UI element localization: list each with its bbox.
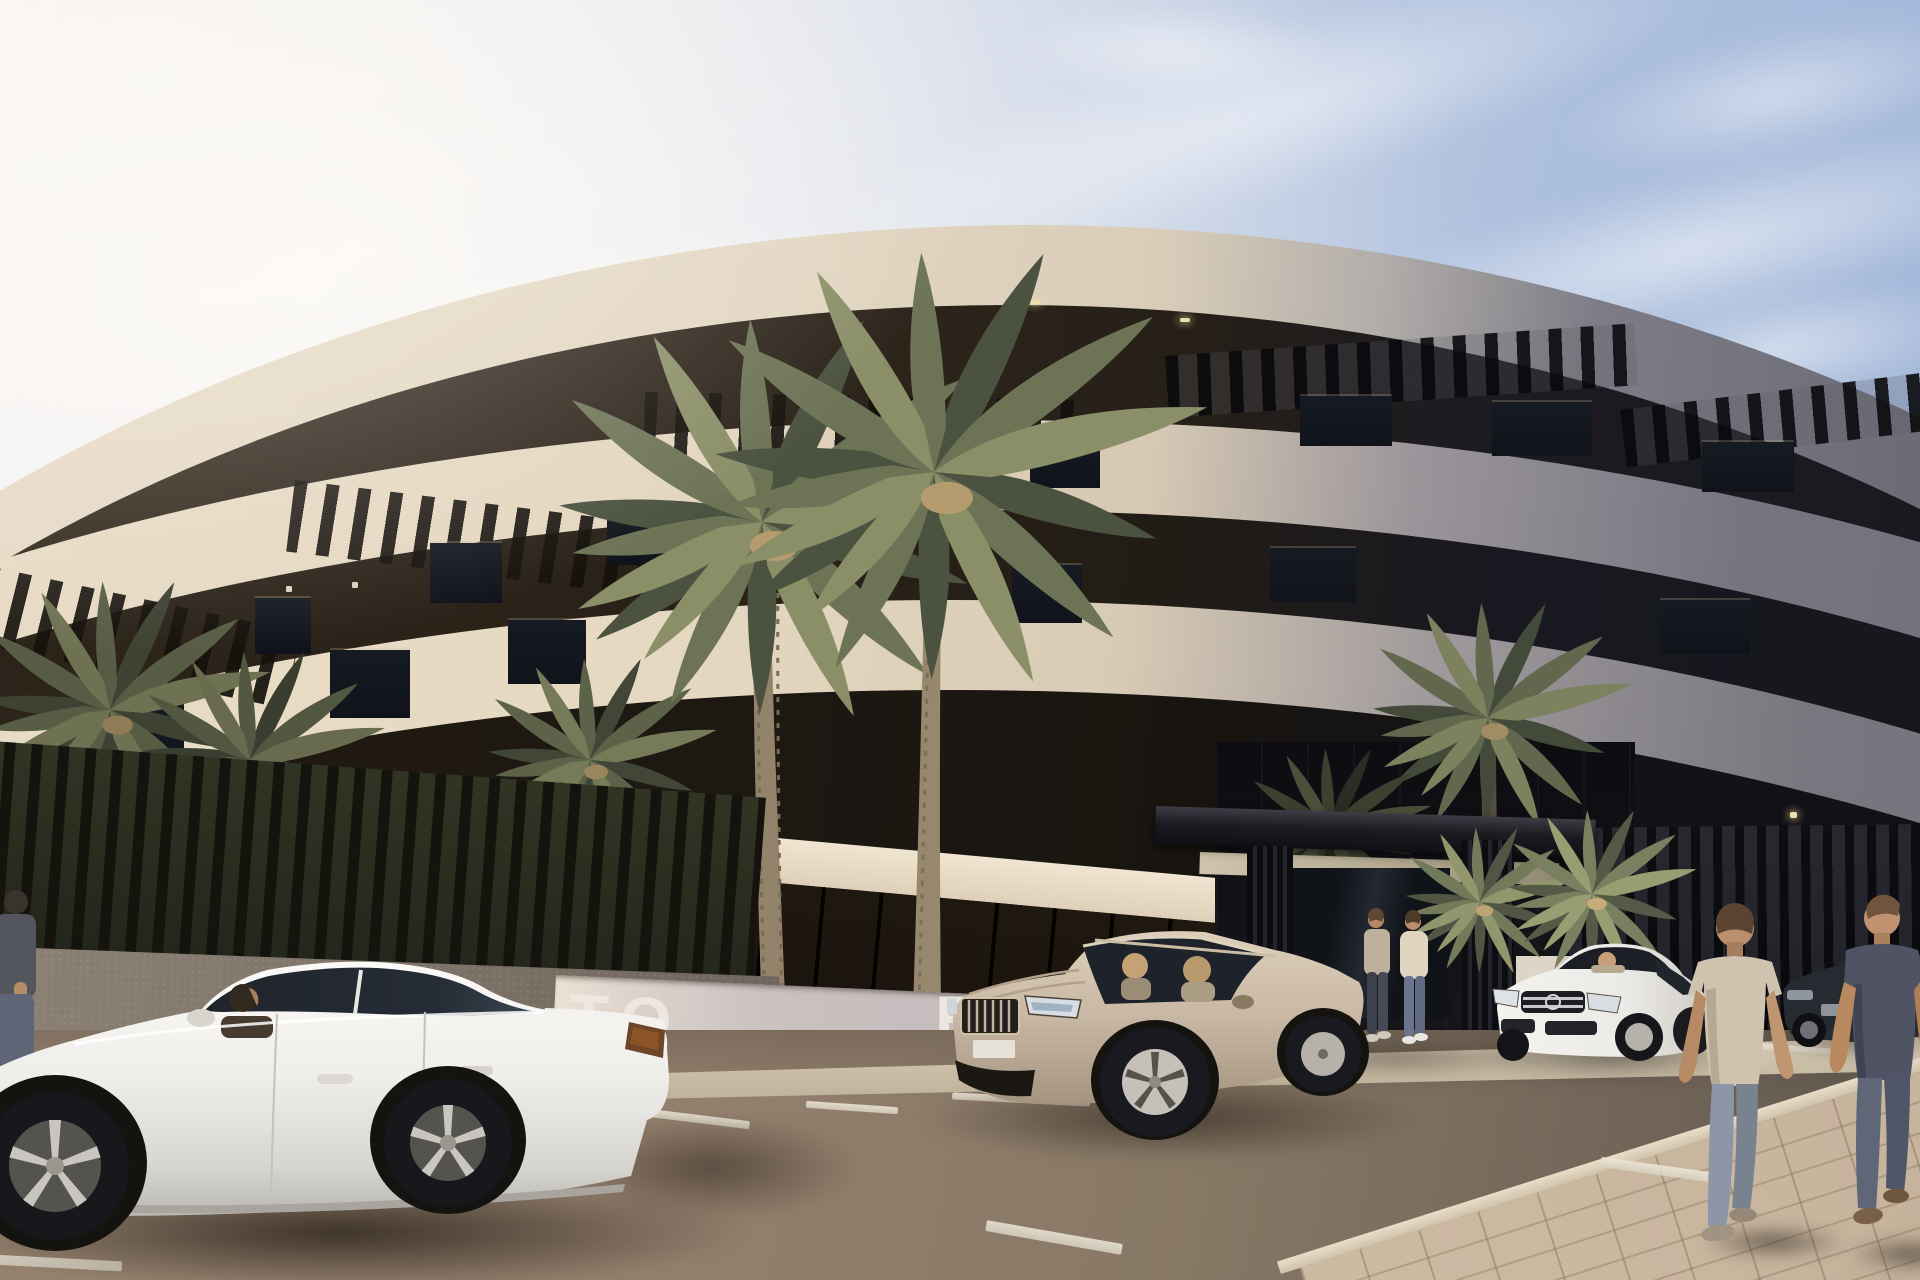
palm-tree-large: [720, 260, 1160, 1020]
window: [430, 543, 502, 603]
window: [1492, 402, 1592, 456]
sedan-driver-head: [229, 984, 257, 1012]
left-arm: [1679, 990, 1706, 1083]
jeans-right-leg: [1732, 1084, 1758, 1210]
suv-headlight-left: [947, 998, 957, 1014]
architectural-render-scene: TO E: [0, 0, 1920, 1280]
right-arm: [1766, 990, 1793, 1079]
merc-intake: [1545, 1021, 1597, 1035]
window: [1300, 396, 1392, 446]
walking-man-dark: [1822, 890, 1920, 1250]
sedan-rear-wheel: [384, 1079, 512, 1207]
sedan-mirror: [187, 1009, 215, 1027]
couple-at-entrance: [1356, 908, 1438, 1050]
window: [1270, 548, 1356, 602]
window: [1702, 442, 1794, 492]
merc-headlight: [1493, 989, 1519, 1007]
suv-rear-wheel: [1285, 1016, 1361, 1092]
jeans-left-leg: [1856, 1078, 1882, 1210]
entrance-person-cardigan: [1364, 908, 1391, 1042]
wall-sconce: [352, 582, 358, 588]
cloud-soft: [1010, 0, 1340, 100]
suv-mirror: [1232, 995, 1254, 1009]
sedan-door-handle: [317, 1074, 353, 1084]
walking-man-beige: [1650, 898, 1820, 1248]
window: [255, 598, 311, 654]
entrance-person-sweater: [1400, 910, 1428, 1044]
suv-front-wheel: [1100, 1027, 1210, 1137]
under-roof-light: [1180, 318, 1190, 322]
wall-sconce: [286, 586, 292, 592]
suv-plate: [973, 1040, 1015, 1058]
beige-suv: [945, 912, 1365, 1128]
white-sedan: [0, 948, 675, 1280]
left-arm: [1830, 982, 1856, 1073]
jeans-right-leg: [1884, 1078, 1910, 1192]
terrace-lamp: [1790, 812, 1797, 818]
window: [1660, 600, 1750, 654]
jeans-left-leg: [1708, 1084, 1734, 1228]
